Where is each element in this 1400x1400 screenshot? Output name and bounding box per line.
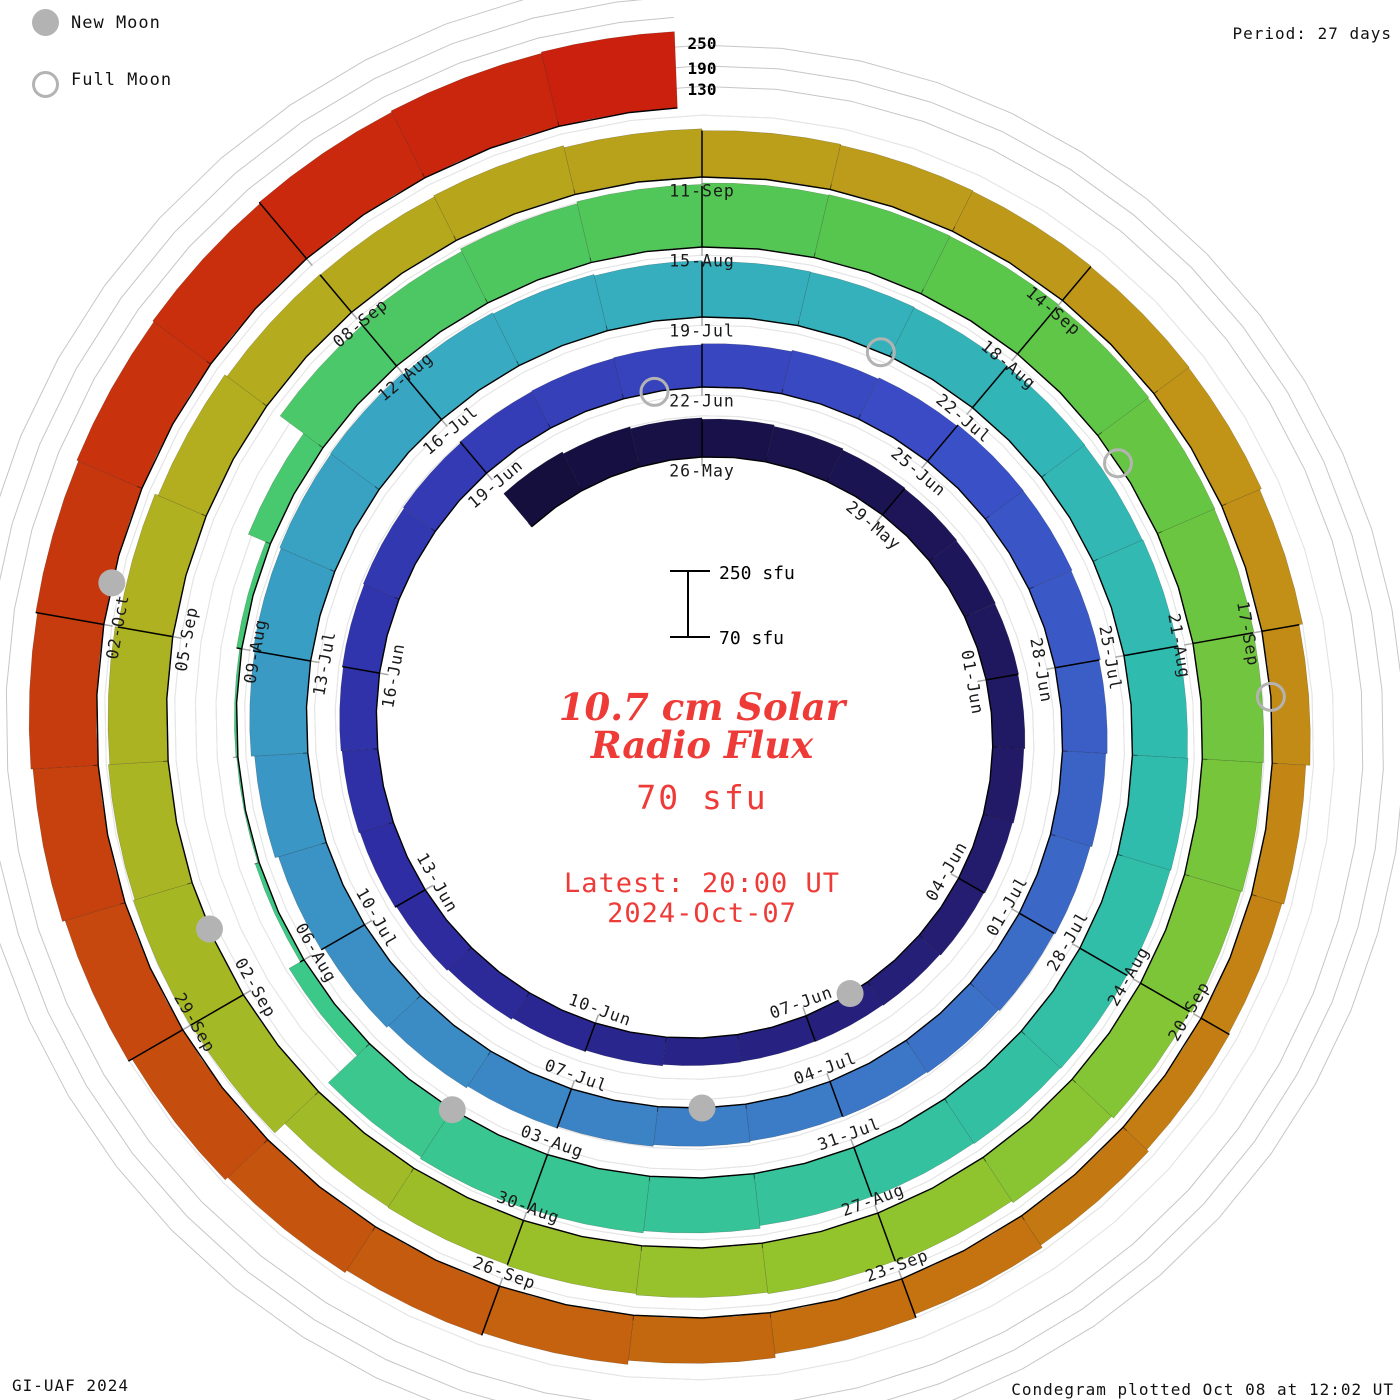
flux-bar-day xyxy=(483,1286,634,1364)
flux-bar-day xyxy=(1055,660,1107,754)
date-label: 22-Jun xyxy=(669,392,735,411)
condegram-page: 26-May29-May01-Jun04-Jun07-Jun10-Jun13-J… xyxy=(0,0,1400,1400)
radial-axis-label-190: 190 xyxy=(667,59,737,78)
daily-tick xyxy=(666,1037,667,1042)
latest-date: 2024-Oct-07 xyxy=(607,898,797,929)
new-moon-marker xyxy=(196,915,223,942)
new-moon-label: New Moon xyxy=(71,13,161,33)
flux-bar-day xyxy=(1051,751,1106,847)
segment-boundary-line xyxy=(237,648,242,649)
chart-title: 10.7 cm Solar Radio Flux xyxy=(452,688,952,764)
flux-bar-day xyxy=(255,753,327,858)
center-text-block: 10.7 cm Solar Radio Flux 70 sfu Latest: … xyxy=(452,688,952,929)
flux-bar-day xyxy=(340,667,380,751)
new-moon-marker xyxy=(837,980,864,1007)
flux-bar-day xyxy=(558,1089,658,1147)
daily-tick xyxy=(657,1107,658,1112)
new-moon-marker xyxy=(98,569,125,596)
daily-tick xyxy=(754,1174,755,1179)
flux-bar-day xyxy=(770,1279,916,1354)
flux-bar-day xyxy=(29,613,104,769)
latest-time: Latest: 20:00 UT xyxy=(564,868,840,899)
scalebar-min-label: 70 sfu xyxy=(719,628,784,649)
daily-tick xyxy=(633,1315,634,1320)
full-moon-label: Full Moon xyxy=(71,70,172,90)
daily-tick xyxy=(762,1243,763,1248)
date-label: 26-May xyxy=(669,462,735,481)
credit-label: GI-UAF 2024 xyxy=(12,1376,129,1395)
daily-tick xyxy=(649,1176,650,1181)
flux-bar-day xyxy=(644,1174,761,1233)
flux-bar-day xyxy=(868,935,940,1005)
flux-bar-day xyxy=(906,983,998,1073)
flux-bar-day xyxy=(532,358,624,428)
date-label: 11-Sep xyxy=(669,182,735,201)
period-label: Period: 27 days xyxy=(1233,24,1393,43)
radial-axis-label-130: 130 xyxy=(667,80,737,99)
new-moon-marker xyxy=(439,1096,466,1123)
flux-bar-day xyxy=(636,1243,768,1297)
flux-bar-day xyxy=(702,262,811,326)
daily-tick xyxy=(770,1313,771,1318)
radial-axis-label-250: 250 xyxy=(667,34,737,53)
full-moon-icon xyxy=(32,71,59,98)
flux-bar-day xyxy=(663,1035,741,1066)
flux-bar-day xyxy=(738,1016,816,1062)
date-label: 15-Aug xyxy=(669,252,735,271)
flux-bar-day xyxy=(631,418,702,467)
plotted-timestamp: Condegram plotted Oct 08 at 12:02 UT xyxy=(1011,1380,1394,1399)
label-tick xyxy=(307,259,313,266)
daily-tick xyxy=(746,1104,747,1109)
flux-bar-day xyxy=(702,344,792,394)
date-label: 19-Jul xyxy=(669,322,735,341)
flux-bar-day xyxy=(594,261,702,331)
flux-bar-day xyxy=(585,1023,666,1066)
baseline-value-label: 70 sfu xyxy=(452,778,952,817)
flux-bar-day xyxy=(1262,625,1310,766)
chart-title-line2: Radio Flux xyxy=(591,723,813,767)
flux-bar-day xyxy=(702,419,774,462)
scalebar-max-label: 250 sfu xyxy=(719,563,795,584)
flux-bar-day xyxy=(541,32,677,127)
daily-tick xyxy=(641,1246,642,1251)
flux-bar-day xyxy=(1118,755,1189,870)
flux-bar-day xyxy=(628,1313,775,1364)
latest-reading-label: Latest: 20:00 UT 2024-Oct-07 xyxy=(452,869,952,929)
daily-tick xyxy=(738,1035,739,1040)
new-moon-marker xyxy=(689,1095,716,1122)
new-moon-icon xyxy=(32,9,59,36)
flux-bar-day xyxy=(1185,759,1263,892)
